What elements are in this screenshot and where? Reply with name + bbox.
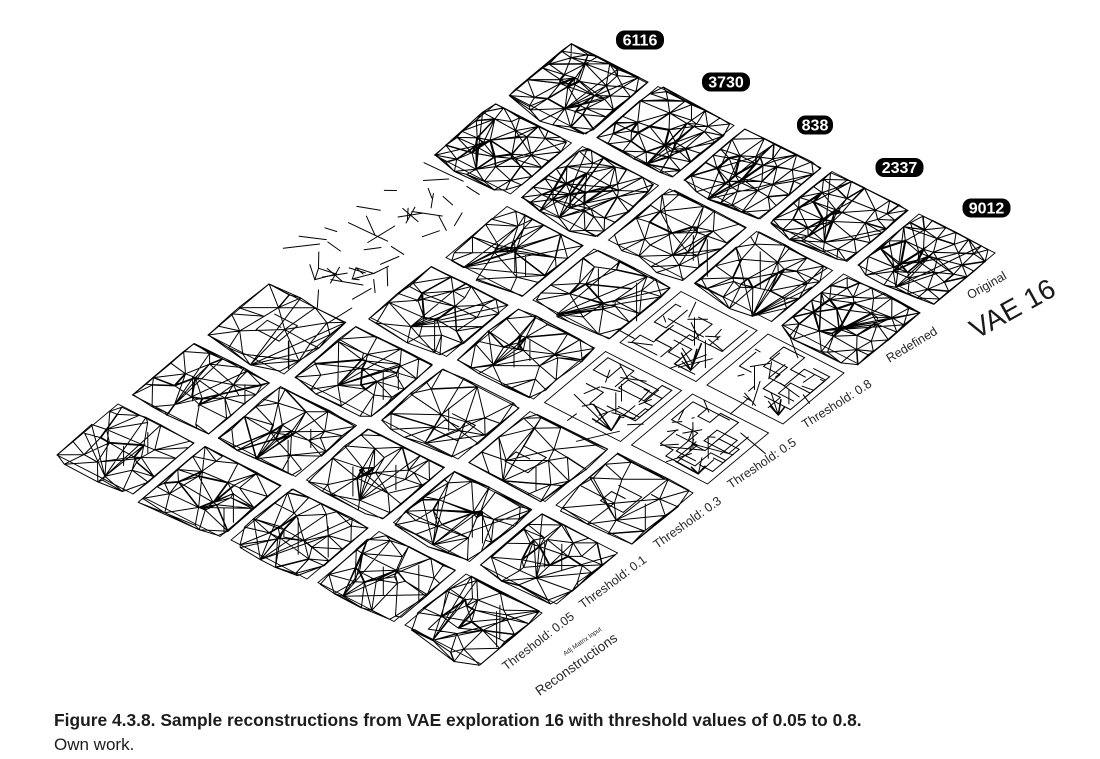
svg-text:Own work.: Own work. [54, 735, 134, 754]
svg-text:838: 838 [802, 118, 829, 135]
svg-text:9012: 9012 [969, 201, 1005, 218]
svg-text:Figure 4.3.8. Sample reconstru: Figure 4.3.8. Sample reconstructions fro… [54, 710, 862, 730]
svg-text:3730: 3730 [708, 75, 744, 92]
svg-text:2337: 2337 [882, 160, 918, 177]
svg-text:6116: 6116 [623, 33, 658, 50]
